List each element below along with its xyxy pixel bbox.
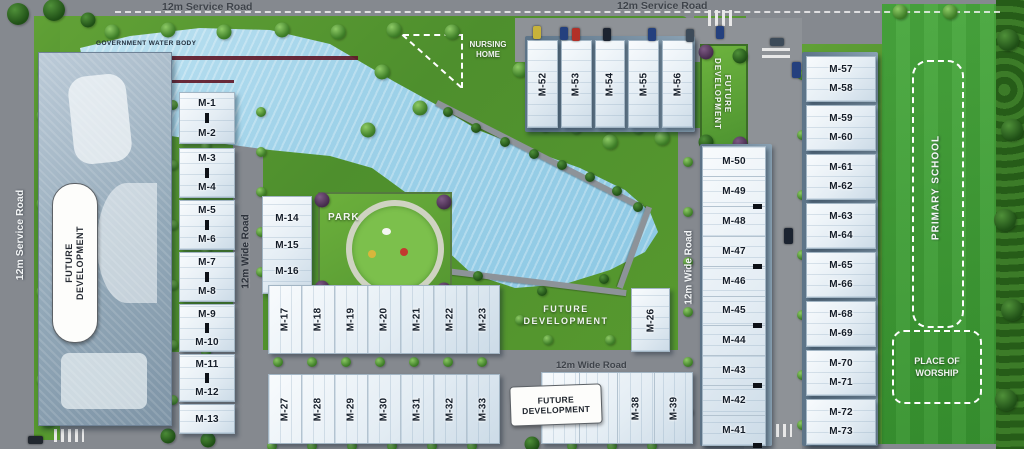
building-unit: M-39 [655, 373, 692, 443]
tree [1001, 299, 1023, 321]
building-unit: M-33 [467, 375, 499, 443]
tree [256, 147, 266, 157]
palm-tree [273, 357, 283, 367]
worship-line1: PLACE OF [914, 355, 960, 367]
building-block: M-5 M-6 [179, 200, 235, 250]
block-label: M-20 [379, 308, 390, 332]
block-label: M-47 [722, 246, 746, 257]
block-label: M-21 [412, 308, 423, 332]
building-unit: M-47 [703, 237, 765, 267]
car [533, 26, 541, 39]
block-label: M-18 [313, 308, 324, 332]
future-line2: DEVELOPMENT [712, 44, 722, 144]
block-divider [205, 220, 209, 230]
block-label: M-32 [445, 397, 456, 421]
block-label: M-11 [195, 359, 218, 370]
building-column: M-50 M-49 M-48 M-47 M-46 M-45 M-44 M-43 … [702, 146, 766, 446]
block-label: M-2 [198, 128, 216, 139]
block-label: M-9 [198, 309, 216, 320]
block-label: M-14 [275, 213, 299, 224]
block-label: M-59 [829, 113, 853, 124]
tree [994, 209, 1016, 231]
nursing-home-line2: HOME [462, 50, 514, 60]
play-equipment-icon [382, 228, 391, 235]
tree [995, 389, 1017, 411]
building-block: M-11 M-12 [179, 354, 235, 402]
building-unit: M-27 [269, 375, 302, 443]
tree [525, 437, 540, 449]
palm-tree [307, 357, 317, 367]
boundary-wall-segment [168, 80, 234, 83]
block-label: M-15 [275, 240, 299, 251]
tree [413, 101, 428, 116]
building-block: M-13 [179, 404, 235, 434]
tree [543, 335, 553, 345]
building-block: M-7 M-8 [179, 252, 235, 302]
building-unit: M-53 [561, 40, 592, 128]
building-unit: M-43 [703, 356, 765, 386]
building-unit: M-41 [703, 416, 765, 445]
building-block: M-70 M-71 [806, 350, 876, 396]
building-block: M-9 M-10 [179, 304, 235, 352]
building-block: M-26 [631, 288, 670, 352]
block-label: M-26 [645, 308, 656, 332]
block-label: M-29 [346, 397, 357, 421]
building-block: M-72 M-73 [806, 399, 876, 445]
building-unit: M-17 [269, 286, 302, 353]
block-label: M-44 [722, 335, 746, 346]
palm-tree [409, 357, 419, 367]
crosswalk [762, 44, 790, 58]
tree [1001, 119, 1023, 141]
bush [612, 186, 622, 196]
tree [331, 25, 346, 40]
building-block: M-14 M-15 M-16 [262, 196, 312, 294]
building-block: M-1 M-2 [179, 92, 235, 144]
building-unit: M-52 [527, 40, 558, 128]
block-label: M-27 [280, 397, 291, 421]
block-label: M-43 [722, 365, 746, 376]
building-block: M-57 M-58 [806, 56, 876, 102]
block-label: M-6 [198, 234, 216, 245]
water-body-label: GOVERNMENT WATER BODY [96, 40, 196, 47]
car [572, 28, 580, 41]
park-ring [346, 200, 444, 298]
block-label: M-8 [198, 286, 216, 297]
tree [603, 135, 618, 150]
building-block: M-61 M-62 [806, 154, 876, 200]
block-label: M-54 [604, 72, 615, 96]
block-divider [205, 373, 209, 383]
block-label: M-65 [829, 260, 853, 271]
tree [161, 429, 176, 444]
bush [443, 107, 453, 117]
block-label: M-38 [630, 396, 641, 420]
tree [893, 5, 908, 20]
block-label: M-23 [478, 308, 489, 332]
block-label: M-57 [829, 64, 853, 75]
block-label: M-49 [722, 186, 746, 197]
block-label: M-60 [829, 132, 853, 143]
block-label: M-16 [275, 266, 299, 277]
block-divider [205, 168, 209, 178]
block-label: M-1 [198, 98, 216, 109]
tree [81, 13, 96, 28]
car [648, 28, 656, 41]
block-label: M-45 [722, 305, 746, 316]
nursing-home-line1: NURSING [462, 40, 514, 50]
building-block: M-65 M-66 [806, 252, 876, 298]
future-development-left-text: FUTURE DEVELOPMENT [64, 188, 86, 338]
building-unit: M-54 [595, 40, 626, 128]
car [686, 29, 694, 42]
bush [633, 202, 643, 212]
bush [529, 149, 539, 159]
place-of-worship-boundary: PLACE OF WORSHIP [892, 330, 982, 404]
tree [43, 0, 65, 21]
bush [315, 193, 330, 208]
bush [437, 195, 452, 210]
building-block: M-68 M-69 [806, 301, 876, 347]
block-label: M-48 [722, 216, 746, 227]
building-unit: M-28 [302, 375, 335, 443]
bush [599, 274, 609, 284]
road-label-inner-south: 12m Wide Road [556, 360, 627, 371]
block-label: M-31 [412, 397, 423, 421]
tree [217, 25, 232, 40]
bush [473, 271, 483, 281]
block-label: M-4 [198, 182, 216, 193]
palm-tree [375, 357, 385, 367]
boundary-wall [143, 56, 358, 60]
bush [500, 137, 510, 147]
building-unit: M-44 [703, 326, 765, 356]
palm-tree [477, 357, 487, 367]
block-label: M-28 [313, 397, 324, 421]
building-unit: M-19 [335, 286, 368, 353]
block-label: M-5 [198, 205, 216, 216]
block-label: M-13 [195, 414, 219, 425]
block-label: M-62 [829, 181, 853, 192]
block-label: M-17 [280, 308, 291, 332]
bush [557, 160, 567, 170]
block-label: M-33 [478, 397, 489, 421]
play-equipment-icon [368, 250, 376, 258]
tree [105, 25, 120, 40]
car [792, 62, 801, 78]
block-label: M-71 [829, 377, 853, 388]
block-label: M-39 [668, 396, 679, 420]
place-of-worship-label: PLACE OF WORSHIP [914, 355, 960, 379]
building-row: M-52 M-53 M-54 M-55 M-56 [527, 40, 693, 128]
block-label: M-12 [195, 387, 219, 398]
block-label: M-56 [672, 72, 683, 96]
building-unit: M-31 [401, 375, 434, 443]
future-line2: DEVELOPMENT [522, 404, 590, 416]
crosswalk [54, 429, 84, 442]
block-label: M-3 [198, 153, 216, 164]
site-plan: PARK NURSING HOME [0, 0, 1024, 449]
block-label: M-68 [829, 309, 853, 320]
future-development-ne-label: FUTURE DEVELOPMENT [712, 44, 732, 144]
block-label: M-64 [829, 230, 853, 241]
tree [683, 357, 693, 367]
block-label: M-53 [571, 72, 582, 96]
tree [655, 131, 670, 146]
car [784, 228, 793, 244]
building-block: M-59 M-60 [806, 105, 876, 151]
building-unit: M-23 [467, 286, 499, 353]
future-development-sign: FUTURE DEVELOPMENT [509, 383, 602, 426]
road-label-inner-west: 12m Wide Road [241, 202, 252, 302]
future-line2: DEVELOPMENT [75, 188, 86, 338]
building-wing [97, 183, 157, 303]
block-label: M-63 [829, 211, 853, 222]
building-row: M-27 M-28 M-29 M-30 M-31 M-32 M-33 [268, 374, 500, 444]
block-label: M-46 [722, 276, 746, 287]
building-unit: M-30 [368, 375, 401, 443]
block-label: M-70 [829, 358, 853, 369]
bush [537, 286, 547, 296]
car [716, 26, 724, 39]
car [603, 28, 611, 41]
park-label: PARK [328, 212, 360, 223]
block-label: M-52 [537, 72, 548, 96]
building-unit: M-32 [434, 375, 467, 443]
building-unit: M-55 [628, 40, 659, 128]
block-label: M-41 [722, 425, 746, 436]
block-divider [205, 323, 209, 333]
building-block: M-3 M-4 [179, 148, 235, 198]
block-label: M-30 [379, 397, 390, 421]
building-row: M-17 M-18 M-19 M-20 M-21 M-22 M-23 [268, 285, 500, 354]
car [28, 436, 43, 444]
block-divider [205, 272, 209, 282]
road-label-top-right: 12m Service Road [617, 0, 707, 12]
block-label: M-61 [829, 162, 853, 173]
block-label: M-58 [829, 83, 853, 94]
tree [445, 25, 460, 40]
road-label-left: 12m Service Road [14, 145, 26, 325]
road-label-inner-east: 12m Wide Road [684, 218, 695, 318]
tree [605, 335, 615, 345]
building-block: M-63 M-64 [806, 203, 876, 249]
block-divider [205, 113, 209, 123]
tree [7, 3, 29, 25]
block-label: M-72 [829, 407, 853, 418]
block-label: M-42 [722, 395, 746, 406]
nursing-home-label: NURSING HOME [462, 40, 514, 60]
future-line1: FUTURE [64, 188, 75, 338]
building-wing [61, 353, 147, 409]
bush [585, 172, 595, 182]
crosswalk [708, 10, 732, 26]
block-label: M-66 [829, 279, 853, 290]
block-label: M-55 [638, 72, 649, 96]
car [560, 27, 568, 40]
building-wing [67, 72, 134, 166]
primary-school-label: PRIMARY SCHOOL [931, 113, 942, 263]
building-unit: M-18 [302, 286, 335, 353]
future-line1: FUTURE [510, 303, 622, 315]
future-development-center-label: FUTURE DEVELOPMENT [510, 303, 622, 327]
building-unit: M-22 [434, 286, 467, 353]
block-label: M-22 [445, 308, 456, 332]
tree [275, 23, 290, 38]
building-unit: M-56 [662, 40, 693, 128]
tree [943, 5, 958, 20]
building-unit: M-20 [368, 286, 401, 353]
worship-line2: WORSHIP [914, 367, 960, 379]
play-equipment-icon [400, 248, 408, 256]
block-label: M-50 [722, 156, 746, 167]
building-unit: M-38 [618, 373, 656, 443]
tree [997, 29, 1019, 51]
tree [161, 23, 176, 38]
block-label: M-7 [198, 257, 216, 268]
tree [375, 65, 390, 80]
building-unit: M-49 [703, 177, 765, 207]
tree [387, 23, 402, 38]
future-line2: DEVELOPMENT [510, 315, 622, 327]
building-unit: M-45 [703, 297, 765, 327]
building-unit: M-48 [703, 207, 765, 237]
tree [256, 107, 266, 117]
block-label: M-10 [195, 337, 219, 348]
block-label: M-69 [829, 328, 853, 339]
tree [683, 207, 693, 217]
building-unit: M-29 [335, 375, 368, 443]
road-label-top-left: 12m Service Road [162, 1, 252, 13]
building-unit: M-50 [703, 147, 765, 177]
bush [471, 123, 481, 133]
future-development-left-sign: FUTURE DEVELOPMENT [52, 183, 98, 343]
palm-tree [341, 357, 351, 367]
tree [201, 433, 216, 448]
bush [733, 49, 748, 64]
tree [361, 123, 376, 138]
block-label: M-73 [829, 426, 853, 437]
building-unit: M-42 [703, 386, 765, 416]
car [770, 38, 784, 46]
block-label: M-19 [346, 308, 357, 332]
palm-tree [443, 357, 453, 367]
park-area: PARK [318, 192, 452, 300]
building-unit: M-21 [401, 286, 434, 353]
tree [683, 157, 693, 167]
future-line1: FUTURE [722, 44, 732, 144]
building-unit: M-46 [703, 267, 765, 297]
